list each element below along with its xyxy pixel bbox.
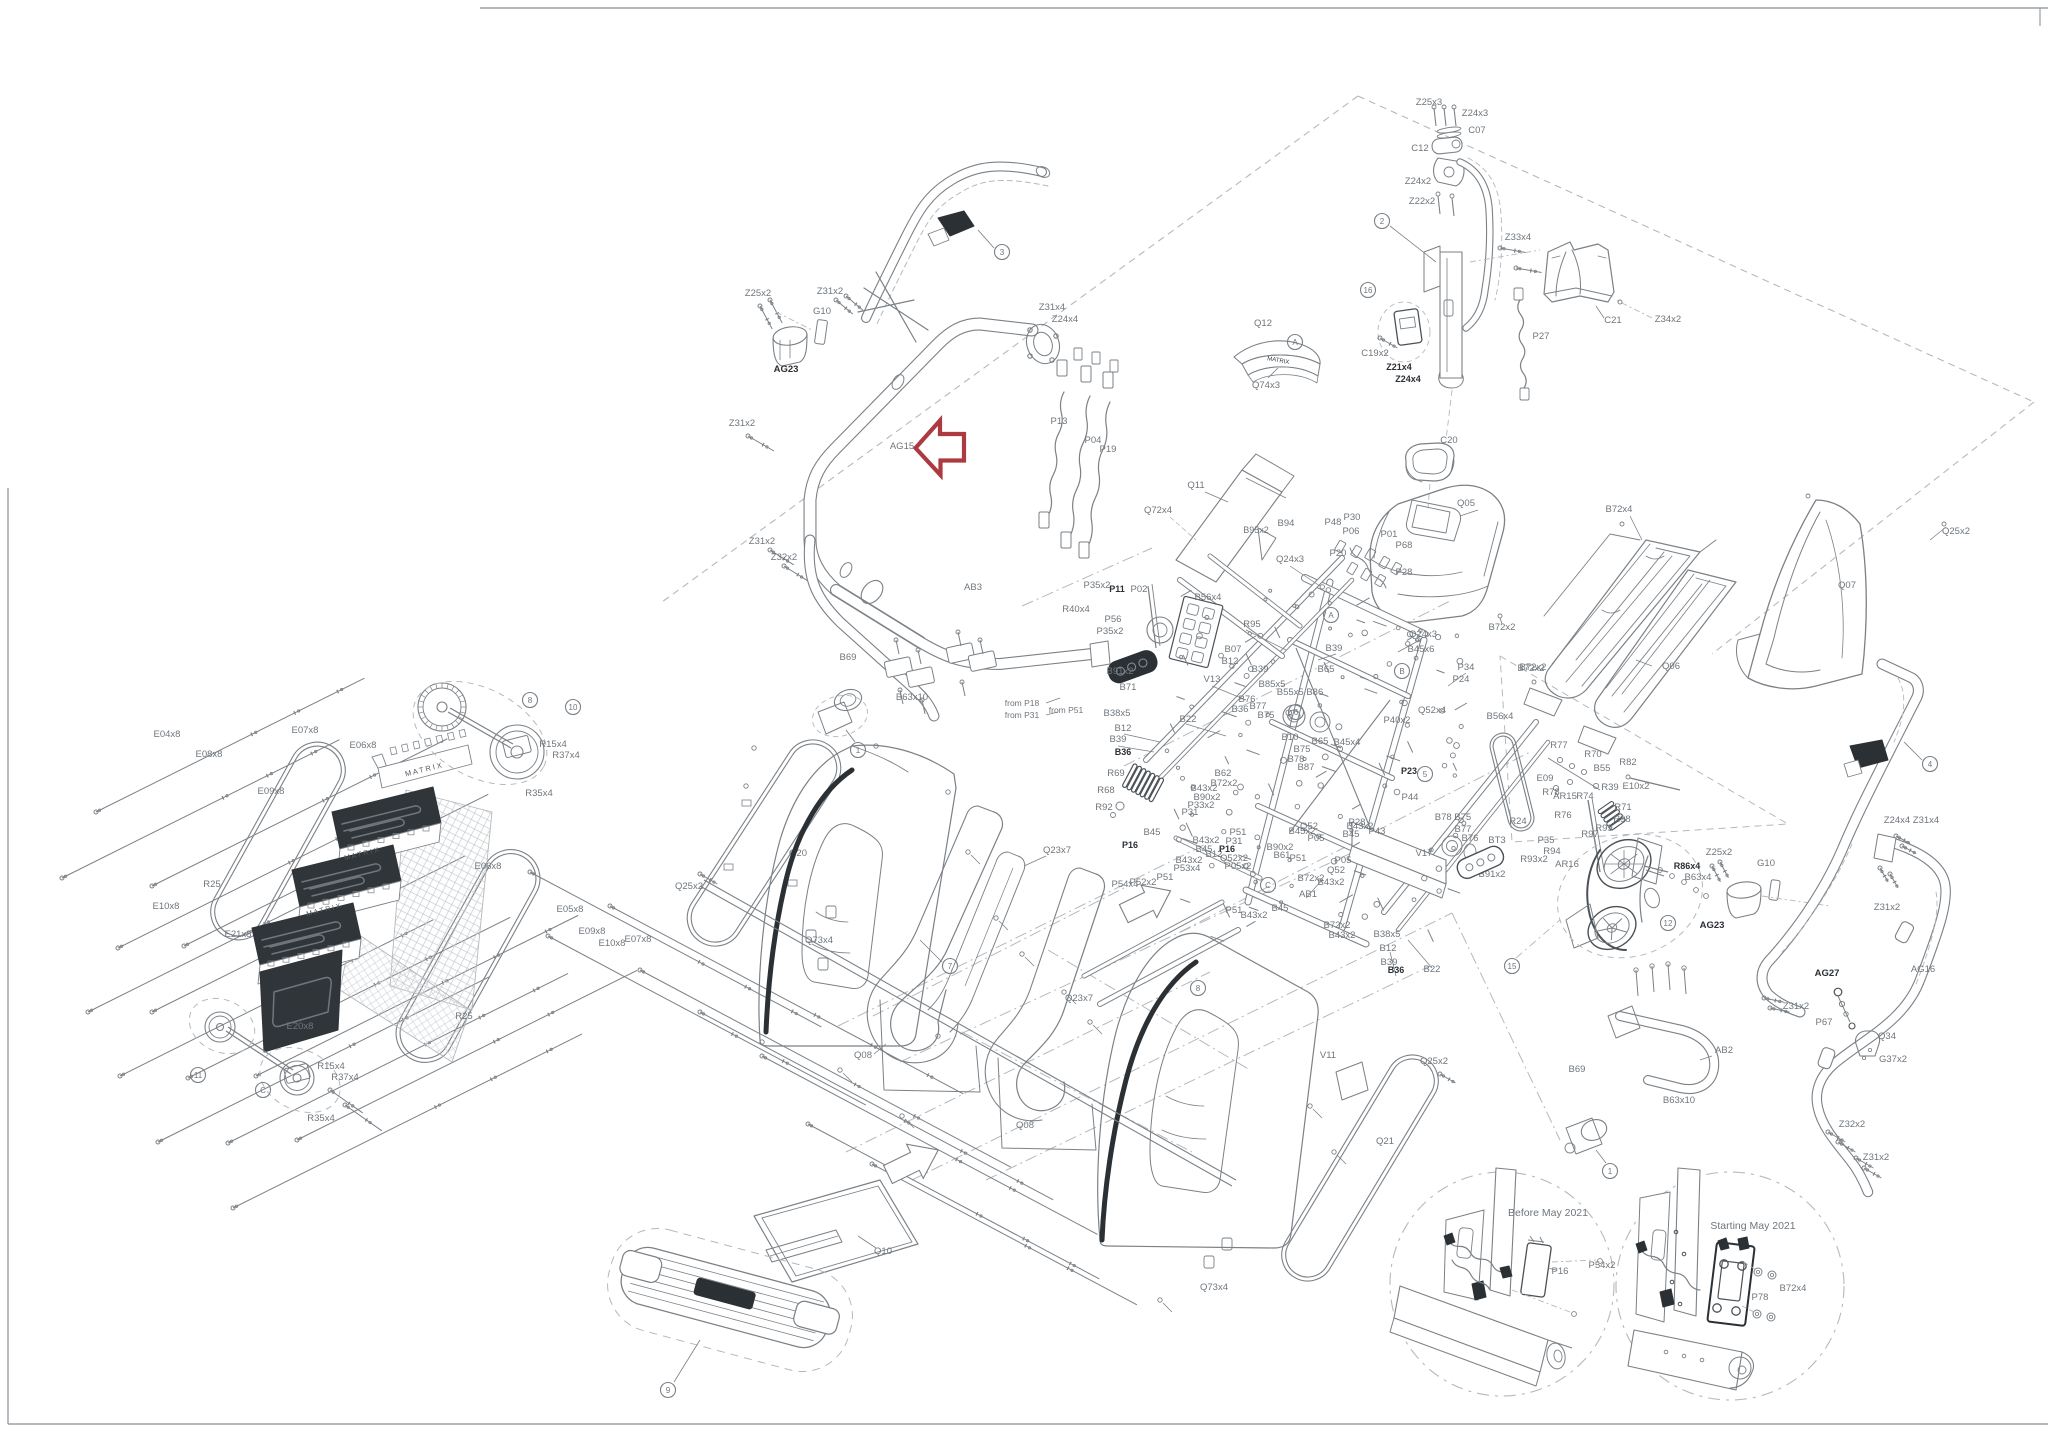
svg-text:Z31x2: Z31x2 [729, 418, 755, 429]
svg-text:AG23: AG23 [1700, 920, 1725, 931]
svg-text:B61: B61 [1274, 850, 1291, 861]
svg-text:B10: B10 [1282, 732, 1299, 743]
svg-text:C21: C21 [1604, 315, 1621, 326]
svg-text:E20x8: E20x8 [287, 1021, 314, 1032]
svg-text:Q05: Q05 [1457, 498, 1475, 509]
svg-text:P78: P78 [1752, 1292, 1769, 1303]
svg-text:P56: P56 [1105, 614, 1122, 625]
svg-text:P53x4: P53x4 [1174, 863, 1201, 874]
svg-text:B69: B69 [1569, 1064, 1586, 1075]
svg-text:E06x8: E06x8 [475, 861, 502, 872]
svg-text:Z25x2: Z25x2 [1706, 847, 1732, 858]
svg-text:C20: C20 [1440, 435, 1457, 446]
svg-text:R40x4: R40x4 [1062, 604, 1089, 615]
svg-text:BT3: BT3 [1488, 835, 1505, 846]
svg-text:P01: P01 [1381, 529, 1398, 540]
svg-text:8: 8 [528, 696, 533, 705]
svg-text:C07: C07 [1468, 125, 1485, 136]
svg-text:R35x4: R35x4 [307, 1113, 334, 1124]
svg-text:E09x8: E09x8 [579, 926, 606, 937]
svg-text:Z33x4: Z33x4 [1505, 232, 1531, 243]
svg-text:B39: B39 [1326, 643, 1343, 654]
svg-text:P20: P20 [1330, 548, 1347, 559]
svg-text:P51: P51 [1226, 905, 1243, 916]
svg-text:E10x8: E10x8 [599, 938, 626, 949]
svg-text:4: 4 [1928, 760, 1933, 769]
svg-text:R25: R25 [203, 879, 220, 890]
svg-text:Z24x2: Z24x2 [1405, 176, 1431, 187]
svg-text:R74: R74 [1576, 791, 1593, 802]
svg-text:B63x10: B63x10 [1663, 1095, 1695, 1106]
svg-text:B87: B87 [1298, 762, 1315, 773]
svg-text:Z24x4: Z24x4 [1395, 374, 1421, 384]
svg-text:AG23: AG23 [774, 364, 799, 375]
svg-text:Q25x2: Q25x2 [675, 881, 703, 892]
svg-text:Q07: Q07 [1838, 580, 1856, 591]
svg-text:Z24x4: Z24x4 [1052, 314, 1078, 325]
svg-text:P27: P27 [1533, 331, 1550, 342]
svg-text:Q74x3: Q74x3 [1252, 380, 1280, 391]
svg-text:B75: B75 [1258, 710, 1275, 721]
svg-text:11: 11 [194, 1071, 203, 1080]
svg-text:Z32x2: Z32x2 [771, 552, 797, 563]
svg-text:B72x4: B72x4 [1606, 504, 1633, 515]
svg-text:B12: B12 [1380, 943, 1397, 954]
svg-text:Q23x7: Q23x7 [1065, 993, 1093, 1004]
svg-text:R92: R92 [1095, 802, 1112, 813]
svg-text:16: 16 [1364, 286, 1373, 295]
svg-text:1: 1 [1608, 1167, 1613, 1176]
svg-text:Q34: Q34 [1878, 1031, 1896, 1042]
svg-text:Starting May 2021: Starting May 2021 [1710, 1220, 1795, 1232]
svg-text:B72x2: B72x2 [1518, 663, 1545, 674]
svg-text:P68: P68 [1396, 540, 1413, 551]
svg-text:Q21: Q21 [1376, 1136, 1394, 1147]
svg-text:6: 6 [1294, 708, 1299, 717]
svg-text:E21x8: E21x8 [225, 929, 252, 940]
svg-text:B38x5: B38x5 [1104, 708, 1131, 719]
svg-text:R71: R71 [1614, 802, 1631, 813]
svg-text:R35x4: R35x4 [525, 788, 552, 799]
svg-text:Z24x3: Z24x3 [1462, 108, 1488, 119]
svg-text:R15x4: R15x4 [539, 739, 566, 750]
svg-text:2: 2 [1380, 217, 1385, 226]
svg-text:B12: B12 [1222, 656, 1239, 667]
svg-text:Q52: Q52 [1327, 865, 1345, 876]
svg-text:from P51: from P51 [1049, 705, 1084, 715]
svg-text:R68: R68 [1097, 785, 1114, 796]
svg-text:Q73x4: Q73x4 [1200, 1282, 1228, 1293]
svg-text:P34: P34 [1458, 662, 1475, 673]
svg-text:Q06: Q06 [1662, 661, 1680, 672]
svg-text:Z25x2: Z25x2 [745, 288, 771, 299]
svg-text:C19x2: C19x2 [1361, 348, 1388, 359]
svg-text:AG27: AG27 [1815, 968, 1840, 979]
svg-text:Before May 2021: Before May 2021 [1508, 1207, 1588, 1219]
svg-text:B39: B39 [1252, 664, 1269, 675]
svg-text:B91x2: B91x2 [1107, 666, 1134, 677]
svg-text:E09x8: E09x8 [258, 786, 285, 797]
svg-text:AG15: AG15 [890, 441, 914, 452]
svg-text:P23: P23 [1401, 766, 1417, 776]
svg-text:Z25x3: Z25x3 [1416, 97, 1442, 108]
svg-text:C: C [1265, 881, 1271, 890]
svg-text:12: 12 [1664, 919, 1673, 928]
svg-text:Q25x2: Q25x2 [1420, 1056, 1448, 1067]
svg-text:B45: B45 [1272, 903, 1289, 914]
svg-text:Q08: Q08 [854, 1050, 872, 1061]
svg-text:B95x2: B95x2 [1243, 525, 1269, 535]
svg-text:B43x2: B43x2 [1329, 930, 1356, 941]
svg-text:R76: R76 [1554, 810, 1571, 821]
svg-text:P06: P06 [1343, 526, 1360, 537]
svg-text:P35x2: P35x2 [1084, 580, 1111, 591]
svg-text:P30: P30 [1344, 512, 1361, 523]
svg-text:AB3: AB3 [964, 582, 982, 593]
svg-text:3: 3 [1000, 248, 1005, 257]
svg-text:B55x5 B86: B55x5 B86 [1277, 687, 1323, 698]
svg-text:Q11: Q11 [1187, 480, 1204, 491]
svg-text:B39: B39 [1110, 734, 1127, 745]
svg-text:Q23x7: Q23x7 [1043, 845, 1071, 856]
svg-text:AR15: AR15 [1553, 791, 1577, 802]
svg-text:Z34x2: Z34x2 [1655, 314, 1681, 325]
svg-text:R39: R39 [1601, 782, 1618, 793]
svg-text:E04x8: E04x8 [154, 729, 181, 740]
svg-text:Q08: Q08 [1016, 1120, 1034, 1131]
svg-text:B07: B07 [1225, 644, 1242, 655]
svg-text:B72x4: B72x4 [1780, 1283, 1807, 1294]
svg-text:P54x2: P54x2 [1589, 1260, 1616, 1271]
svg-text:Z31x2: Z31x2 [817, 286, 843, 297]
svg-text:Z31x4: Z31x4 [1039, 302, 1065, 313]
svg-text:R77: R77 [1550, 740, 1567, 751]
svg-text:Z21x4: Z21x4 [1386, 362, 1412, 372]
svg-text:B65: B65 [1312, 736, 1329, 747]
svg-text:B69: B69 [840, 652, 857, 663]
svg-text:from P31: from P31 [1005, 710, 1040, 720]
svg-text:B38x5: B38x5 [1374, 929, 1401, 940]
svg-text:Z31x4: Z31x4 [1913, 815, 1939, 826]
svg-text:R97: R97 [1581, 829, 1598, 840]
svg-text:E07x8: E07x8 [292, 725, 319, 736]
svg-text:B43x2: B43x2 [1318, 877, 1345, 888]
svg-text:Q25x2: Q25x2 [1942, 526, 1970, 537]
svg-text:P67: P67 [1816, 1017, 1833, 1028]
svg-text:B78 B75: B78 B75 [1435, 812, 1471, 823]
svg-text:V17: V17 [1416, 848, 1433, 859]
svg-text:from P18: from P18 [1005, 698, 1040, 708]
svg-text:B63x4: B63x4 [1685, 872, 1712, 883]
svg-text:E07x8: E07x8 [625, 934, 652, 945]
svg-text:10: 10 [569, 703, 578, 712]
svg-text:P24: P24 [1453, 674, 1470, 685]
svg-text:B72x2: B72x2 [1324, 920, 1351, 931]
svg-text:Z31x2: Z31x2 [749, 536, 775, 547]
svg-text:V13: V13 [1204, 674, 1221, 685]
svg-text:P11: P11 [1109, 584, 1125, 594]
svg-text:Z31x2: Z31x2 [1783, 1001, 1809, 1012]
svg-text:E10x2: E10x2 [1623, 781, 1650, 792]
svg-text:P48: P48 [1325, 517, 1342, 528]
svg-text:C12: C12 [1411, 143, 1428, 154]
svg-text:B: B [1399, 667, 1404, 676]
svg-text:G10: G10 [1757, 858, 1775, 869]
svg-text:Q52x4: Q52x4 [1418, 705, 1446, 716]
svg-text:A: A [1292, 338, 1298, 347]
svg-text:P02: P02 [1131, 584, 1148, 595]
svg-text:C: C [260, 1086, 266, 1095]
svg-text:P51: P51 [1290, 853, 1307, 864]
svg-text:8: 8 [1196, 984, 1201, 993]
svg-text:AB2: AB2 [1715, 1045, 1733, 1056]
svg-text:15: 15 [1508, 962, 1517, 971]
svg-text:R82: R82 [1619, 757, 1636, 768]
svg-text:E05x8: E05x8 [557, 904, 584, 915]
svg-text:B45: B45 [1144, 827, 1161, 838]
svg-text:Z31x2: Z31x2 [1863, 1152, 1889, 1163]
svg-text:E10x8: E10x8 [153, 901, 180, 912]
svg-text:B22: B22 [1424, 964, 1441, 975]
svg-text:Q10: Q10 [874, 1246, 892, 1257]
svg-text:P40x2: P40x2 [1384, 715, 1411, 726]
svg-text:G10: G10 [813, 306, 831, 317]
svg-text:B71: B71 [1120, 682, 1137, 693]
svg-text:AR16: AR16 [1555, 859, 1579, 870]
svg-text:Z32x2: Z32x2 [1839, 1119, 1865, 1130]
svg-text:AG16: AG16 [1911, 964, 1935, 975]
svg-text:B36: B36 [1388, 965, 1405, 975]
svg-text:E09: E09 [1537, 773, 1554, 784]
svg-text:P35x2: P35x2 [1097, 626, 1124, 637]
svg-text:A: A [1328, 611, 1334, 620]
svg-text:R98: R98 [1613, 814, 1630, 825]
svg-text:B63x10: B63x10 [896, 692, 928, 703]
svg-text:R86x4: R86x4 [1674, 861, 1701, 871]
svg-text:Q72x4: Q72x4 [1144, 505, 1172, 516]
svg-text:B56x4: B56x4 [1487, 711, 1514, 722]
svg-text:5: 5 [1423, 770, 1428, 779]
svg-text:R15x4: R15x4 [317, 1061, 344, 1072]
svg-text:P16: P16 [1552, 1266, 1569, 1277]
svg-text:R93x2: R93x2 [1520, 854, 1547, 865]
svg-text:R69: R69 [1107, 768, 1124, 779]
svg-text:P05x2: P05x2 [1225, 861, 1252, 872]
svg-text:Z24x4: Z24x4 [1884, 815, 1910, 826]
svg-text:P43: P43 [1369, 826, 1386, 837]
svg-text:B45x6: B45x6 [1408, 644, 1435, 655]
svg-text:P28: P28 [1349, 817, 1366, 828]
svg-text:B22: B22 [1180, 714, 1197, 725]
svg-text:E06x8: E06x8 [350, 740, 377, 751]
svg-text:Q24x3: Q24x3 [1409, 629, 1437, 640]
svg-text:P05: P05 [1335, 855, 1352, 866]
svg-text:P16: P16 [1219, 844, 1235, 854]
svg-text:P31: P31 [1182, 807, 1199, 818]
svg-text:P05: P05 [1308, 833, 1325, 844]
svg-text:E08x8: E08x8 [196, 749, 223, 760]
svg-text:Q12: Q12 [1254, 318, 1272, 329]
svg-text:AB1: AB1 [1299, 889, 1317, 900]
svg-text:B94: B94 [1278, 518, 1295, 529]
svg-text:V11: V11 [1320, 1050, 1336, 1061]
svg-text:Q24x3: Q24x3 [1276, 554, 1304, 565]
svg-text:B55: B55 [1594, 763, 1611, 774]
svg-text:P51: P51 [1157, 872, 1174, 883]
svg-text:B12: B12 [1115, 723, 1132, 734]
svg-text:B43x2: B43x2 [1241, 910, 1268, 921]
svg-text:P16: P16 [1122, 840, 1138, 850]
svg-text:G37x2: G37x2 [1879, 1054, 1907, 1065]
svg-text:R37x4: R37x4 [331, 1072, 358, 1083]
svg-text:R25: R25 [455, 1011, 472, 1022]
svg-text:P44: P44 [1402, 792, 1419, 803]
svg-text:P19: P19 [1100, 444, 1117, 455]
svg-text:B65: B65 [1318, 664, 1335, 675]
svg-text:R37x4: R37x4 [552, 750, 579, 761]
svg-text:Q52: Q52 [1300, 821, 1318, 832]
svg-text:B45: B45 [1343, 829, 1360, 840]
svg-text:9: 9 [666, 1386, 671, 1395]
svg-text:Z31x2: Z31x2 [1874, 902, 1900, 913]
svg-text:B56x4: B56x4 [1195, 592, 1222, 603]
svg-text:B36: B36 [1115, 747, 1132, 757]
svg-text:B76: B76 [1462, 833, 1479, 844]
svg-text:Z22x2: Z22x2 [1409, 196, 1435, 207]
svg-text:R95: R95 [1243, 619, 1260, 630]
svg-text:B36: B36 [1232, 704, 1249, 715]
svg-text:P13: P13 [1051, 416, 1068, 427]
svg-text:B45x4: B45x4 [1334, 737, 1361, 748]
svg-text:P35: P35 [1538, 835, 1555, 846]
